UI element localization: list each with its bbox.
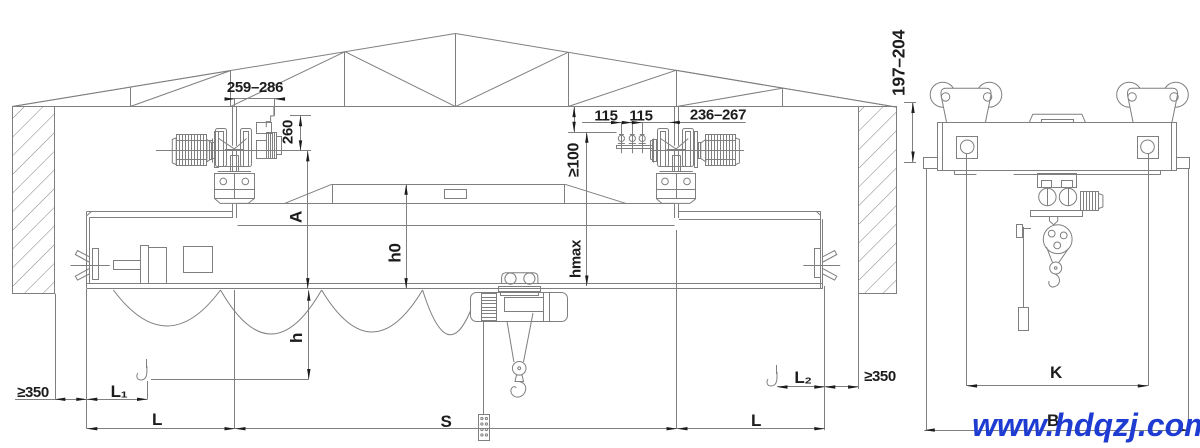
svg-text:K: K — [1050, 363, 1063, 382]
svg-text:A: A — [287, 211, 306, 223]
svg-text:h: h — [287, 333, 306, 343]
svg-text:h0: h0 — [386, 243, 405, 262]
svg-text:hmax: hmax — [568, 239, 585, 278]
svg-text:L: L — [152, 410, 162, 429]
svg-text:≥350: ≥350 — [17, 384, 49, 401]
svg-text:236–267: 236–267 — [690, 107, 746, 124]
svg-text:259–286: 259–286 — [227, 79, 283, 96]
svg-text:260: 260 — [280, 120, 297, 144]
svg-text:L: L — [751, 411, 761, 430]
svg-text:≥350: ≥350 — [864, 368, 896, 385]
svg-text:L₁: L₁ — [111, 382, 128, 401]
svg-text:L₂: L₂ — [794, 368, 811, 387]
svg-text:197–204: 197–204 — [889, 29, 909, 96]
svg-text:≥100: ≥100 — [566, 142, 583, 177]
